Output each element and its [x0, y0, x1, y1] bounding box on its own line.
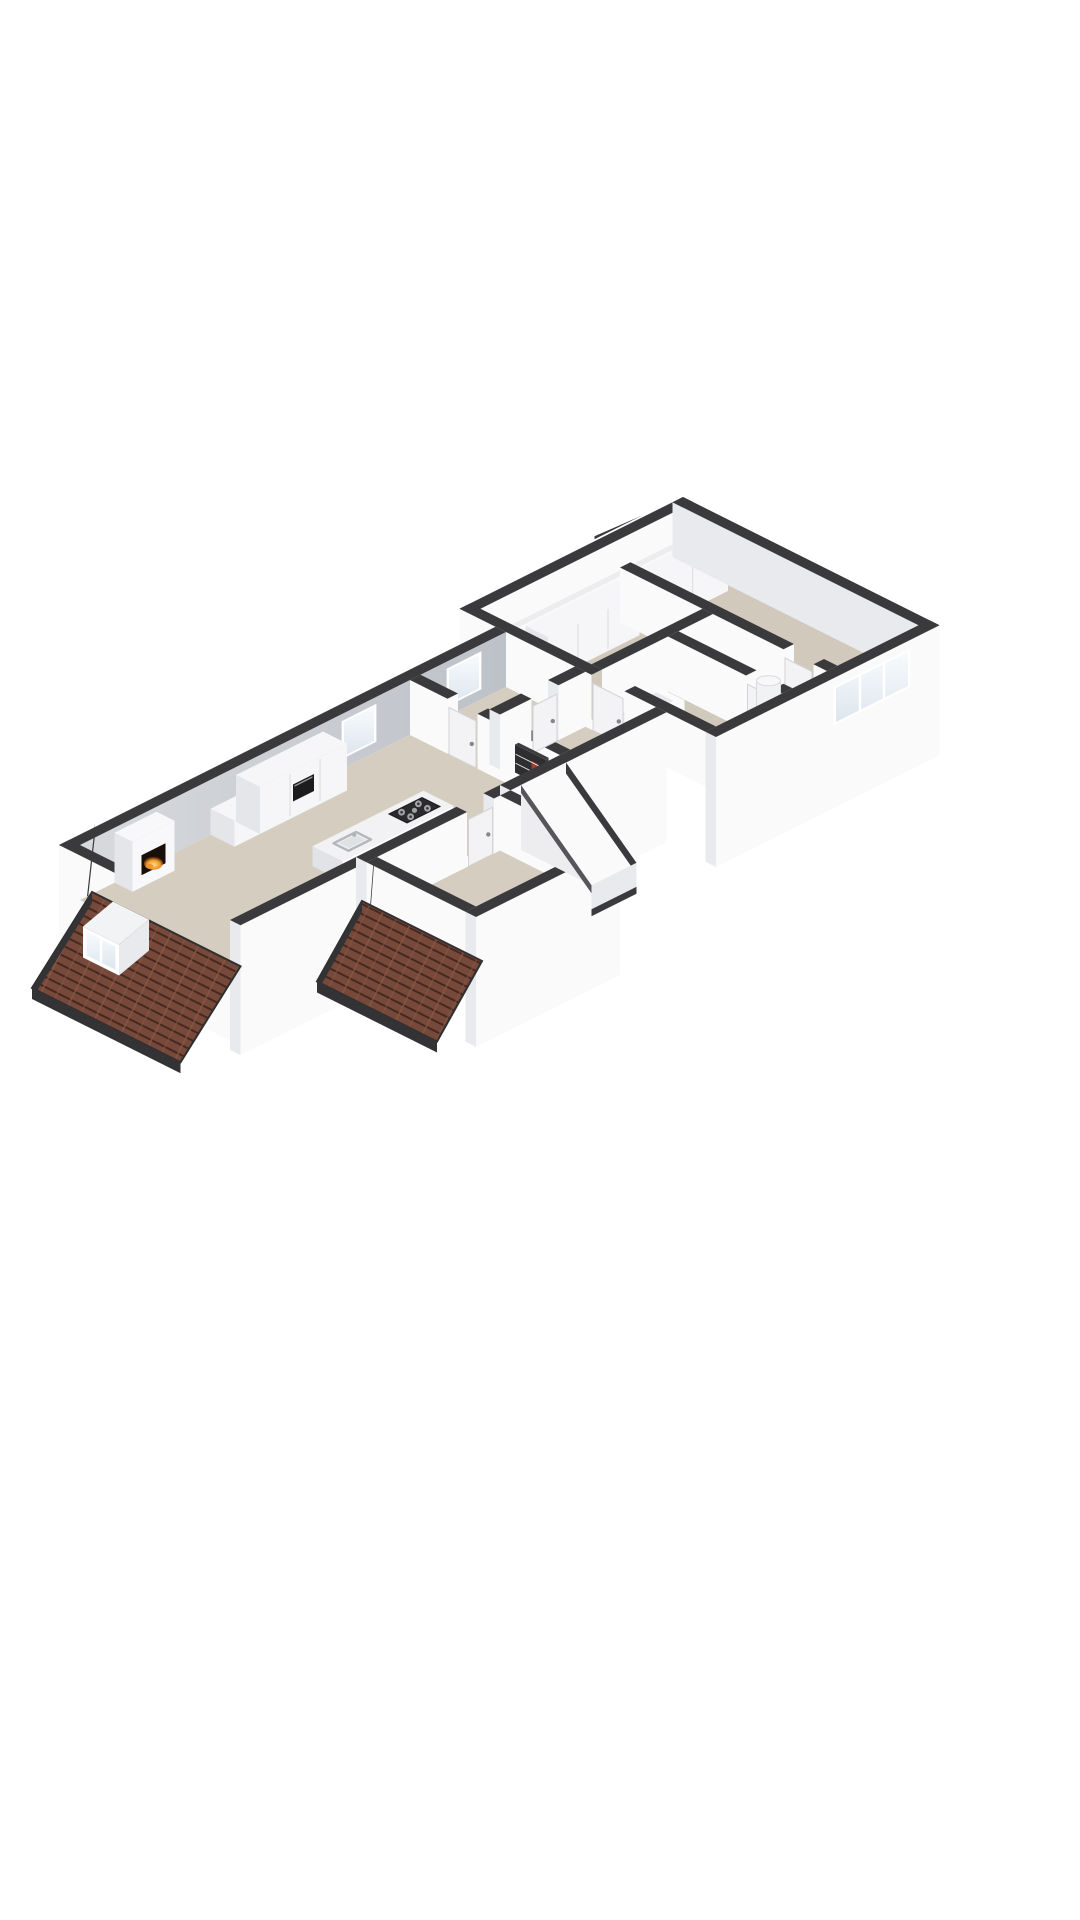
- front-room-door-handle: [486, 832, 490, 836]
- main-se-wall-west-face-sw: [230, 920, 241, 1055]
- wing-se-wall-face-sw: [706, 732, 717, 867]
- floor-plan-figure: [0, 0, 1080, 1920]
- hob-burner-center: [409, 815, 412, 818]
- cabinet-seam: [289, 774, 290, 817]
- hall-corridor-wall-face-sw: [490, 709, 501, 769]
- hob-burner-center: [417, 803, 420, 806]
- floor-plan-3d-render: [0, 0, 1080, 1920]
- hob-burner-center: [400, 811, 403, 814]
- cabinet-seam: [319, 759, 320, 802]
- hall-door-1-handle: [470, 742, 474, 746]
- wardrobe-left-seam: [607, 609, 608, 650]
- hall-door-2-handle: [551, 719, 555, 723]
- boiler-top: [757, 676, 781, 686]
- hob-burner: [412, 808, 417, 813]
- sink-faucet: [352, 833, 356, 837]
- bedroom-window-mullion: [859, 675, 861, 710]
- hob-burner-center: [426, 807, 429, 810]
- fireplace-face-sw: [115, 833, 133, 892]
- fire-embers: [146, 864, 154, 869]
- dormer-window-mullion: [100, 939, 102, 963]
- wing-entry-door-handle: [617, 719, 621, 723]
- bedroom-window-mullion: [883, 663, 885, 698]
